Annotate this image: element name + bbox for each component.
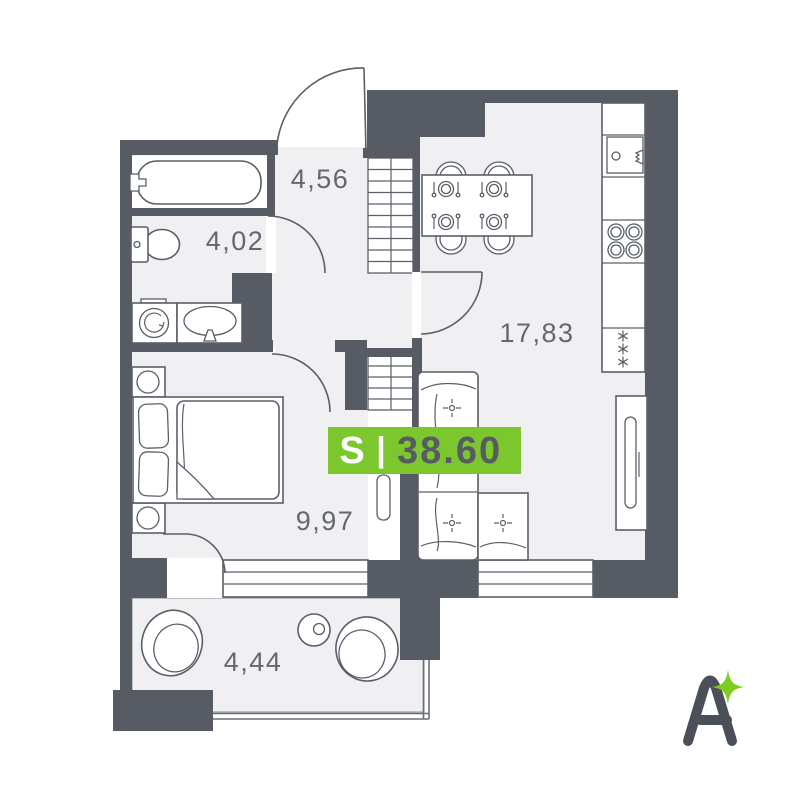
toilet-icon	[131, 227, 180, 262]
bedroom-window	[223, 560, 368, 597]
nightstand-icon	[132, 503, 165, 533]
wall-shaft-top	[348, 348, 413, 357]
wall-balcony-pier	[400, 598, 440, 660]
floor-plan-page: 4,56 4,02 17,83 9,97 4,44 S | 38.60	[0, 0, 799, 800]
bathroom-sink-icon	[177, 303, 242, 343]
wall-balcony-block	[113, 690, 213, 731]
nightstand-icon	[132, 367, 165, 397]
shaft-upper-icon	[368, 158, 413, 273]
pocket-door-leaf-icon	[377, 475, 390, 520]
wall-entry-pier	[367, 90, 400, 158]
wall-top-kitchen	[485, 90, 645, 103]
wall-bottom-right	[593, 560, 678, 598]
wall-top-center	[400, 90, 485, 137]
wall-right	[645, 90, 678, 598]
wall-bath-right	[267, 140, 275, 216]
badge-separator: |	[376, 431, 386, 469]
wardrobe-icon	[616, 396, 647, 530]
area-label-hallway: 4,56	[291, 164, 350, 194]
wall-left	[120, 140, 132, 690]
bed-icon	[133, 397, 283, 503]
wall-top-bath	[120, 140, 278, 155]
area-label-balcony: 4,44	[224, 647, 283, 677]
wall-shaft-corner	[400, 137, 413, 158]
wall-shaft-left	[345, 352, 367, 410]
entrance-door-icon	[277, 68, 366, 152]
wc-door-opening	[266, 216, 276, 273]
wall-kitchen-door-upper	[413, 137, 420, 273]
kitchen-door-opening	[412, 272, 421, 338]
floor-plan-drawing: 4,56 4,02 17,83 9,97 4,44 S | 38.60	[0, 0, 799, 800]
total-area-badge: S | 38.60	[328, 427, 521, 474]
area-label-bedroom: 9,97	[296, 506, 355, 536]
kitchen-sink-icon	[607, 137, 643, 173]
wall-bedroom-bottom-left	[132, 558, 167, 598]
living-window	[478, 560, 593, 597]
coffee-table-icon	[298, 614, 330, 646]
developer-logo	[688, 670, 744, 741]
area-label-kitchen-living: 17,83	[499, 318, 574, 348]
area-label-bathroom: 4,02	[206, 226, 265, 256]
shaft-lower-icon	[368, 355, 413, 410]
wall-bottom-center	[367, 560, 478, 598]
bathtub-icon	[130, 161, 261, 204]
balcony-door-opening	[167, 558, 223, 598]
washing-machine-icon	[132, 299, 177, 343]
badge-value: 38.60	[397, 430, 502, 472]
badge-label: S	[339, 430, 364, 472]
wall-under-tub	[131, 208, 275, 216]
